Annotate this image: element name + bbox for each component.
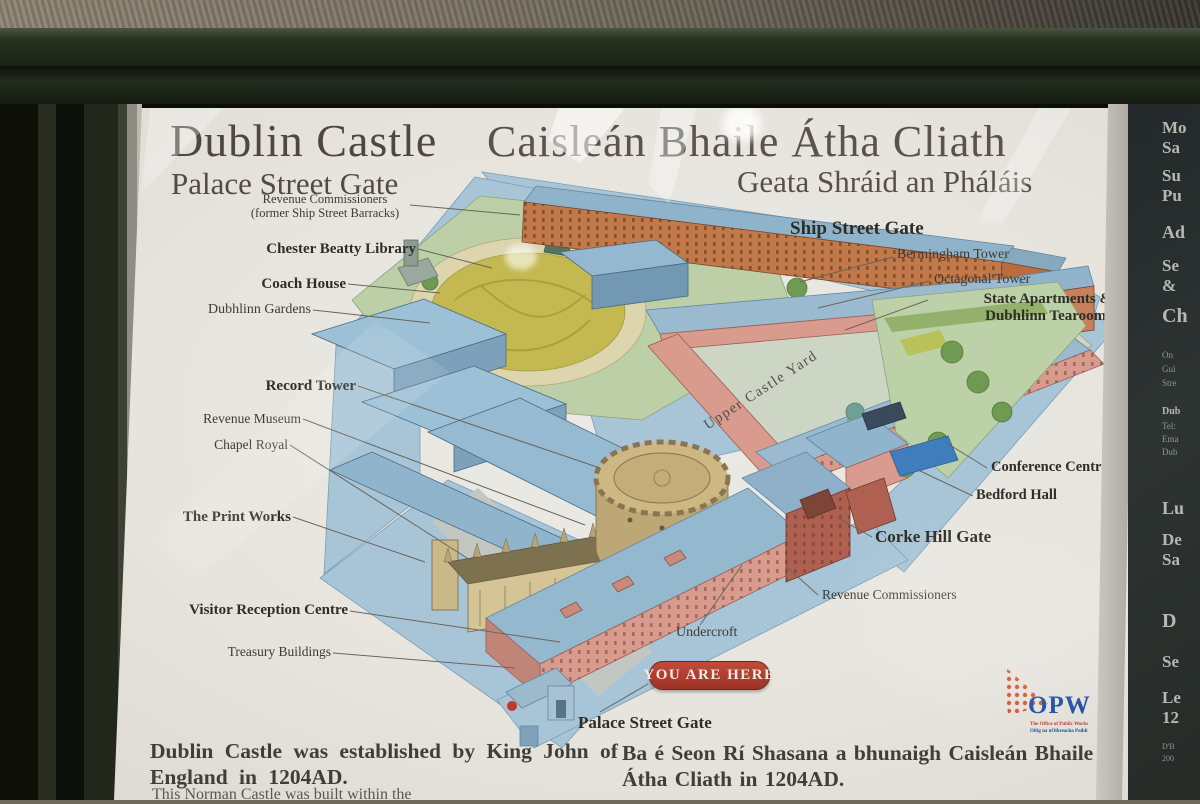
label-print-works: The Print Works [140, 509, 291, 526]
frame-top-inner-bar [0, 66, 1200, 104]
title-irish: Caisleán Bhaile Átha Cliath [487, 116, 1006, 167]
title-english: Dublin Castle [170, 114, 437, 167]
panel-fragment: Ema [1162, 434, 1179, 444]
footer-irish: Ba é Seon Rí Shasana a bhunaigh Caisleán… [622, 740, 1102, 792]
panel-fragment: Ch [1162, 305, 1188, 328]
panel-fragment: Le [1162, 688, 1181, 708]
opw-line2: Oifig na nOibreacha Poiblí [1030, 729, 1088, 734]
subtitle-irish: Geata Shráid an Pháláis [737, 164, 1032, 200]
opw-line1: The Office of Public Works [1030, 722, 1088, 727]
label-treasury-buildings: Treasury Buildings [170, 644, 331, 659]
panel-fragment: 12 [1162, 708, 1179, 728]
panel-fragment: On [1162, 350, 1173, 360]
panel-fragment: & [1162, 276, 1176, 296]
adjacent-panel: Mo Sa Su Pu Ad Se & Ch On Gui Stre Dub T… [1128, 104, 1200, 800]
label-conference-centre: Conference Centre [991, 459, 1108, 475]
panel-fragment: D [1162, 610, 1176, 633]
photographed-sign: Dublin Castle Caisleán Bhaile Átha Cliat… [0, 0, 1200, 800]
frame-top-shadow [0, 104, 1200, 108]
label-bermingham-tower: Bermingham Tower [897, 247, 1009, 263]
panel-fragment: Mo [1162, 118, 1187, 138]
label-coach-house: Coach House [200, 276, 346, 293]
label-chapel-royal: Chapel Royal [150, 437, 288, 452]
label-ship-street-gate: Ship Street Gate [790, 218, 924, 239]
opw-acronym: OPW [1028, 692, 1091, 720]
label-corke-hill-gate: Corke Hill Gate [875, 527, 991, 546]
panel-fragment: Dub [1162, 406, 1180, 417]
footer-english-partial: This Norman Castle was built within the [152, 786, 412, 804]
panel-fragment: Sa [1162, 138, 1180, 158]
panel-fragment: Stre [1162, 378, 1177, 388]
panel-fragment: Lu [1162, 498, 1184, 519]
panel-fragment: Se [1162, 652, 1179, 672]
footer-english: Dublin Castle was established by King Jo… [150, 738, 620, 790]
you-are-here-badge: YOU ARE HERE [649, 661, 770, 690]
label-palace-street-gate-bottom: Palace Street Gate [578, 713, 712, 732]
label-bedford-hall: Bedford Hall [976, 487, 1057, 503]
label-record-tower: Record Tower [200, 378, 356, 395]
panel-fragment: Tel: [1162, 421, 1176, 431]
panel-fragment: Sa [1162, 550, 1180, 570]
label-dubhlinn-gardens: Dubhlinn Gardens [165, 302, 311, 318]
panel-fragment: Se [1162, 256, 1179, 276]
panel-fragment: Pu [1162, 186, 1182, 206]
panel-fragment: De [1162, 530, 1182, 550]
frame-top-bar [0, 28, 1200, 66]
label-undercroft: Undercroft [676, 625, 737, 641]
panel-fragment: Ad [1162, 222, 1185, 243]
panel-fragment: Su [1162, 166, 1181, 186]
panel-fragment: 200 [1162, 754, 1174, 763]
label-revenue-commissioners-bottom: Revenue Commissioners [822, 587, 957, 602]
label-state-apartments: State Apartments & Dubhlinn Tearooms [920, 291, 1112, 325]
panel-fragment: Dub [1162, 447, 1178, 457]
label-revenue-commissioners-top: Revenue Commissioners (former Ship Stree… [240, 192, 410, 220]
label-octagonal-tower: Octagonal Tower [934, 272, 1030, 288]
label-chester-beatty-library: Chester Beatty Library [230, 241, 416, 258]
panel-fragment: Gui [1162, 364, 1176, 374]
label-revenue-museum: Revenue Museum [150, 411, 301, 426]
label-visitor-reception-centre: Visitor Reception Centre [158, 602, 348, 619]
panel-fragment: D'B [1162, 742, 1175, 751]
